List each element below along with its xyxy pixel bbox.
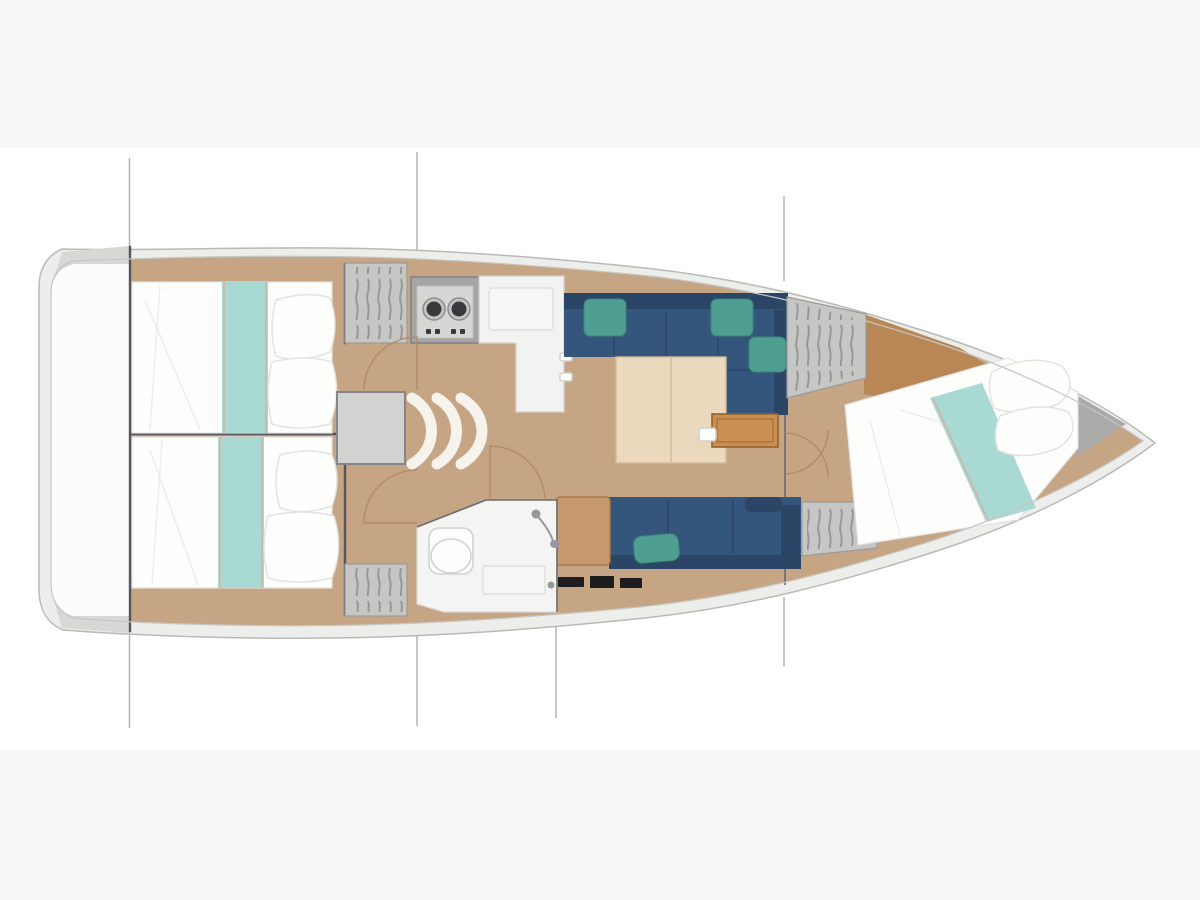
hanger-slats xyxy=(349,568,403,612)
aft-port-pillow-2 xyxy=(268,358,337,428)
hanger-slats xyxy=(349,267,403,339)
aft-cabin-starboard xyxy=(132,437,339,588)
engine-box xyxy=(337,392,405,464)
teal-cushion-3 xyxy=(749,337,786,372)
burner-left xyxy=(427,302,442,317)
toilet-bowl xyxy=(431,539,471,573)
stern-locker-area xyxy=(51,257,130,622)
sofa-port-bolster xyxy=(745,497,782,512)
nav-seat xyxy=(556,497,610,565)
aft-starboard-pillow-2 xyxy=(264,512,339,582)
background-band-top xyxy=(0,0,1200,148)
salon-sofa-port xyxy=(609,497,801,569)
burner-right xyxy=(452,302,467,317)
head-sink xyxy=(483,566,545,594)
teal-cushion-4 xyxy=(633,533,680,564)
counter-handle-2 xyxy=(560,373,572,381)
shower-head xyxy=(550,540,560,548)
fwd-pillow-1 xyxy=(989,360,1070,412)
aft-cabin-port xyxy=(132,282,337,433)
teal-cushion-2 xyxy=(711,299,753,336)
boat-floorplan xyxy=(0,0,1200,900)
galley-sink-lid xyxy=(489,288,553,330)
aft-port-pillow-1 xyxy=(272,294,335,359)
aft-starboard-blanket xyxy=(218,437,264,588)
table-latch xyxy=(699,428,716,441)
aft-port-blanket xyxy=(222,282,268,433)
background-band-bottom xyxy=(0,750,1200,900)
fwd-navy-locker xyxy=(781,505,800,560)
teal-cushion-1 xyxy=(584,299,626,336)
aft-starboard-pillow-1 xyxy=(276,451,337,512)
boat-floorplan-page xyxy=(0,0,1200,900)
sink-faucet xyxy=(548,582,555,589)
